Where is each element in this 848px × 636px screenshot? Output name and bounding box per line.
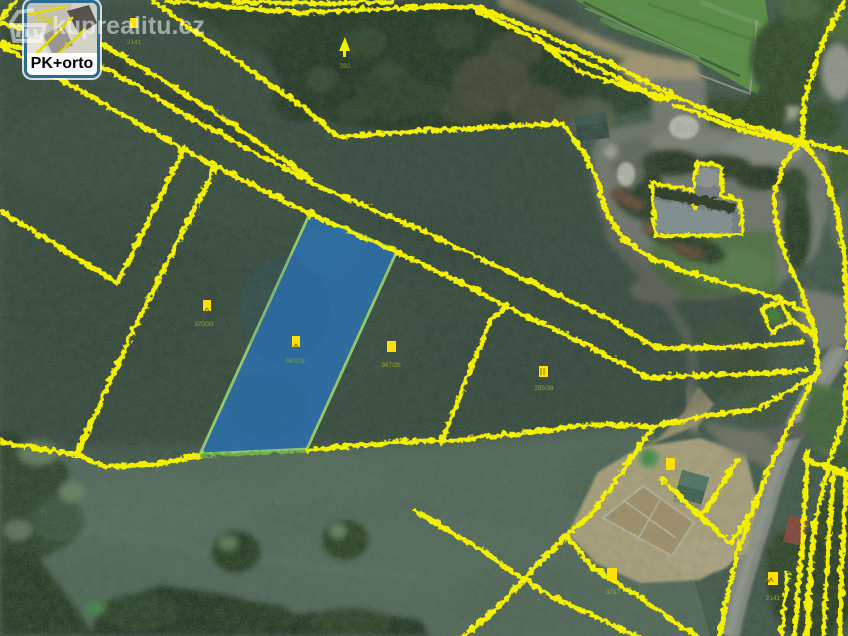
svg-text:295/38: 295/38 bbox=[534, 385, 554, 392]
svg-text:382: 382 bbox=[340, 63, 351, 70]
svg-text:370/33: 370/33 bbox=[194, 321, 214, 328]
svg-text:2141: 2141 bbox=[766, 595, 781, 602]
svg-text:367/2: 367/2 bbox=[663, 480, 680, 487]
svg-text:3717: 3717 bbox=[606, 589, 621, 596]
svg-text:2141: 2141 bbox=[127, 39, 142, 46]
svg-text:367/2b: 367/2b bbox=[381, 362, 401, 369]
svg-text:360/29: 360/29 bbox=[285, 358, 305, 365]
